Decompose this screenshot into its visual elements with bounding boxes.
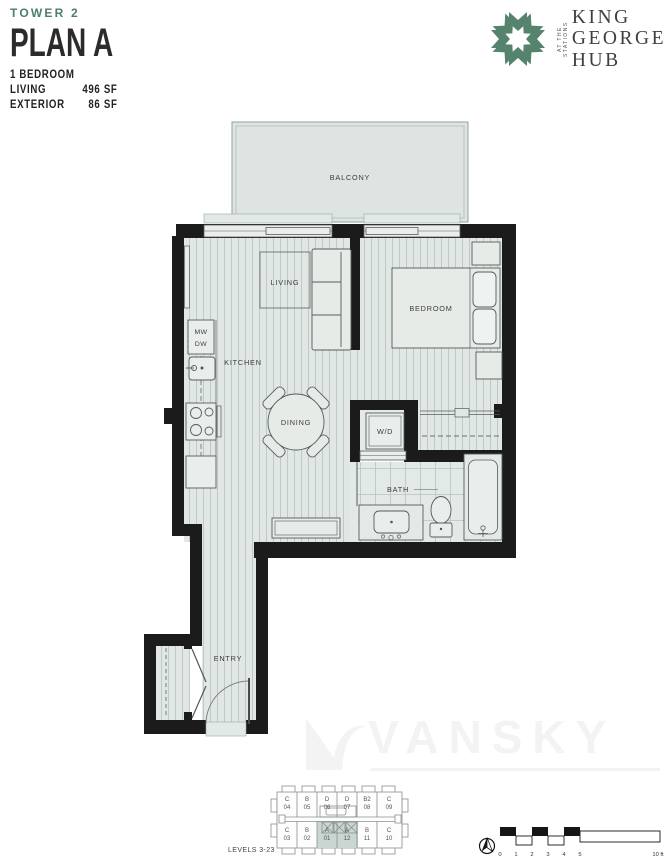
keyplan-unit-label-highlighted: A (325, 828, 329, 834)
keyplan-unit-label: B (365, 828, 369, 834)
keyplan-unit-label: B (305, 828, 309, 834)
nightstand (476, 352, 502, 379)
bath-label: BATH (387, 485, 409, 494)
pillow (473, 272, 496, 307)
baseboard-heater (185, 246, 190, 308)
svg-text:08: 08 (364, 805, 371, 811)
keyplan-unit-label: C (285, 828, 290, 834)
keyplan-unit-label: C (387, 828, 392, 834)
svg-text:11: 11 (364, 836, 371, 842)
svg-text:07: 07 (344, 805, 351, 811)
scale-tick: 0 (498, 852, 501, 858)
svg-text:10: 10 (386, 836, 393, 842)
keyplan-unit-label: C (285, 797, 290, 803)
north-arrow-icon (480, 838, 495, 854)
balcony: BALCONY (232, 122, 468, 222)
scale-tick: 4 (562, 852, 566, 858)
toilet (431, 497, 451, 524)
keyplan-unit-label: B2 (363, 797, 371, 803)
levels-label: LEVELS 3-23 (228, 847, 275, 854)
keyplan-unit-label: B (305, 797, 309, 803)
balcony-label: BALCONY (330, 173, 370, 182)
dw-label: DW (195, 341, 207, 348)
scale-tick: 5 (578, 852, 581, 858)
keyplan: C 04 B 05 D 06 D 07 B2 08 C 09 C 03 B 02… (228, 786, 408, 854)
svg-text:03: 03 (284, 836, 291, 842)
svg-text:04: 04 (284, 805, 291, 811)
sofa (312, 249, 351, 350)
keyplan-unit-label: C (387, 797, 392, 803)
entry-label: ENTRY (214, 654, 243, 663)
scale-bar: 0 1 2 3 4 5 10 ft (498, 827, 664, 858)
balcony-windows (204, 214, 460, 237)
mw-label: MW (194, 329, 207, 336)
svg-text:02: 02 (304, 836, 311, 842)
scale-tick: 1 (514, 852, 517, 858)
scale-end-label: 10 ft (652, 852, 664, 858)
svg-text:01: 01 (324, 836, 331, 842)
kitchen-cabinet (186, 456, 216, 488)
scale-tick: 2 (530, 852, 533, 858)
scale-tick: 3 (546, 852, 549, 858)
dining-area: DINING (261, 385, 330, 458)
bedroom-label: BEDROOM (409, 304, 452, 313)
living-label: LIVING (271, 278, 300, 287)
microwave-dishwasher (188, 320, 214, 354)
keyplan-unit-label-highlighted: A (345, 828, 349, 834)
keyplan-unit-label: D (325, 797, 330, 803)
floorplan-drawing: BALCONY (0, 0, 670, 867)
entry-threshold (206, 722, 246, 736)
floorplan-sheet: TOWER 2 PLAN A 1 BEDROOM LIVING 496 SF E… (0, 0, 670, 867)
kitchen-label: KITCHEN (224, 358, 262, 367)
svg-text:06: 06 (324, 805, 331, 811)
dining-label: DINING (281, 418, 311, 427)
svg-text:09: 09 (386, 805, 393, 811)
keyplan-unit-label: D (345, 797, 350, 803)
svg-text:12: 12 (344, 836, 351, 842)
wd-label: W/D (377, 427, 393, 436)
nightstand (472, 242, 500, 265)
svg-text:05: 05 (304, 805, 311, 811)
laundry-closet: W/D (360, 413, 406, 460)
pillow (473, 309, 496, 344)
